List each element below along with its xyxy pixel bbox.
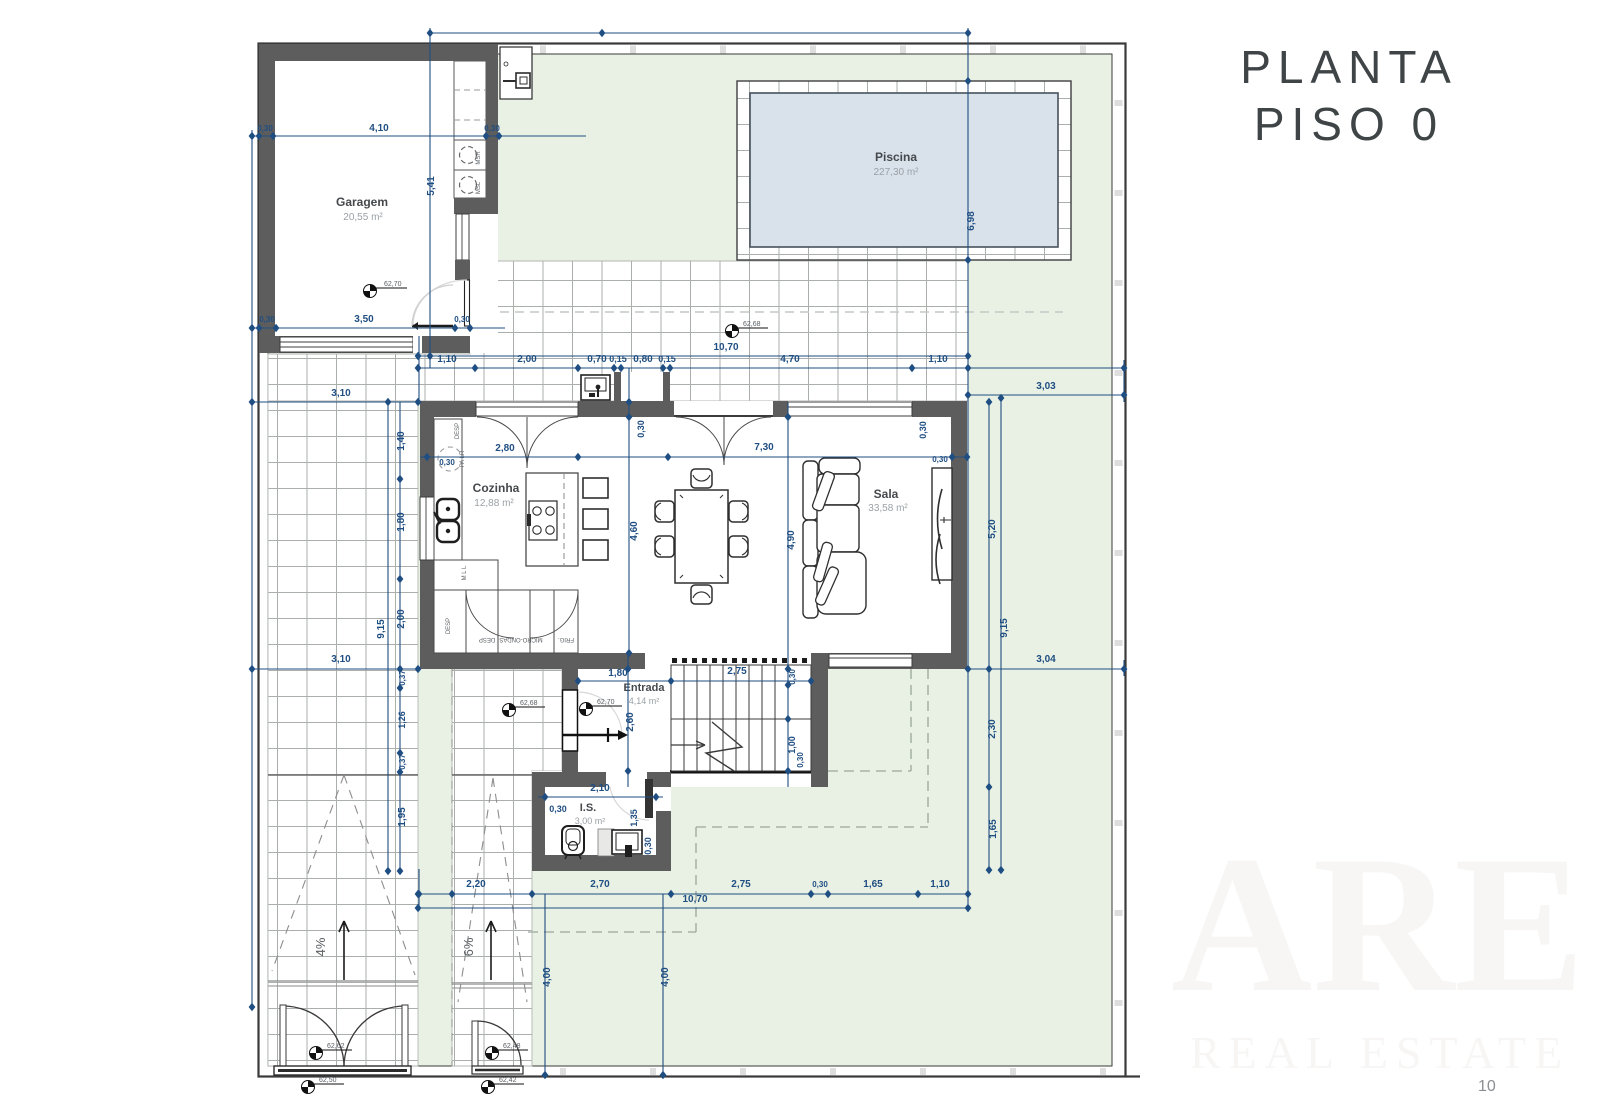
svg-text:0,30: 0,30	[484, 124, 500, 133]
svg-text:REAL ESTATE: REAL ESTATE	[1190, 1027, 1570, 1078]
svg-text:10,70: 10,70	[682, 894, 707, 905]
svg-text:6,98: 6,98	[966, 211, 977, 231]
svg-text:0,30: 0,30	[439, 458, 455, 467]
svg-text:0,15: 0,15	[609, 354, 627, 364]
svg-text:2,00: 2,00	[396, 609, 407, 629]
svg-text:3,10: 3,10	[331, 388, 351, 399]
svg-text:5,41: 5,41	[426, 176, 437, 196]
svg-text:33,58 m²: 33,58 m²	[868, 503, 908, 514]
svg-text:62,42: 62,42	[499, 1077, 517, 1084]
svg-text:1,95: 1,95	[397, 807, 408, 827]
svg-text:M L L: M L L	[462, 565, 468, 580]
svg-text:5,20: 5,20	[987, 519, 998, 539]
svg-text:227,30 m²: 227,30 m²	[873, 167, 919, 178]
svg-text:MICRO-ONDAS: MICRO-ONDAS	[499, 636, 542, 642]
svg-text:1,35: 1,35	[629, 809, 639, 827]
svg-text:4,10: 4,10	[369, 123, 389, 134]
svg-text:Entrada: Entrada	[624, 682, 666, 694]
svg-text:0,30: 0,30	[636, 420, 646, 438]
svg-text:62,68: 62,68	[743, 321, 761, 328]
svg-text:0,30: 0,30	[259, 315, 275, 324]
svg-text:3,00 m²: 3,00 m²	[575, 816, 606, 826]
svg-text:3,03: 3,03	[1036, 381, 1056, 392]
svg-text:DESP: DESP	[455, 423, 461, 439]
svg-text:62,48: 62,48	[503, 1043, 521, 1050]
svg-text:2,60: 2,60	[625, 712, 636, 732]
svg-text:62,68: 62,68	[520, 700, 538, 707]
svg-text:10: 10	[1478, 1078, 1496, 1095]
svg-text:0,37: 0,37	[398, 754, 407, 770]
svg-text:1,10: 1,10	[437, 354, 457, 365]
svg-text:0,30: 0,30	[788, 669, 797, 685]
svg-text:0,80: 0,80	[633, 354, 653, 365]
svg-text:0,70: 0,70	[587, 354, 607, 365]
svg-text:Cozinha: Cozinha	[473, 481, 520, 495]
svg-text:12,88 m²: 12,88 m²	[474, 498, 514, 509]
svg-text:4,70: 4,70	[780, 354, 800, 365]
svg-text:0,30: 0,30	[549, 804, 567, 814]
svg-text:1,80: 1,80	[608, 668, 628, 679]
svg-text:DESP: DESP	[446, 618, 452, 634]
svg-text:2,80: 2,80	[495, 443, 515, 454]
svg-text:9,15: 9,15	[376, 619, 387, 639]
svg-text:MSR: MSR	[476, 151, 482, 165]
svg-text:Garagem: Garagem	[336, 195, 388, 209]
svg-text:1,65: 1,65	[988, 819, 999, 839]
svg-text:1,65: 1,65	[863, 879, 883, 890]
svg-text:ARE: ARE	[1171, 816, 1585, 1033]
svg-text:4%: 4%	[313, 937, 328, 956]
svg-text:2,00: 2,00	[517, 354, 537, 365]
svg-text:PLANTA: PLANTA	[1240, 41, 1458, 93]
svg-text:2,20: 2,20	[466, 879, 486, 890]
svg-text:0,30: 0,30	[796, 752, 805, 768]
svg-text:4,60: 4,60	[629, 521, 640, 541]
svg-text:MSL: MSL	[476, 181, 482, 194]
svg-text:0,15: 0,15	[658, 354, 676, 364]
svg-text:0,30: 0,30	[643, 837, 653, 855]
svg-text:Sala: Sala	[874, 487, 899, 501]
svg-text:62,70: 62,70	[597, 699, 615, 706]
svg-text:9,15: 9,15	[999, 618, 1010, 638]
svg-text:4,00: 4,00	[542, 967, 553, 987]
svg-text:1,26: 1,26	[397, 711, 407, 729]
svg-text:4,90: 4,90	[786, 530, 797, 550]
svg-text:3,10: 3,10	[331, 654, 351, 665]
svg-text:2,75: 2,75	[731, 879, 751, 890]
svg-text:4,00: 4,00	[660, 967, 671, 987]
svg-text:0,30: 0,30	[932, 455, 948, 464]
svg-text:62,70: 62,70	[384, 281, 402, 288]
svg-text:10,70: 10,70	[713, 342, 738, 353]
svg-text:1,80: 1,80	[396, 512, 407, 532]
svg-text:2,70: 2,70	[590, 879, 610, 890]
svg-text:Piscina: Piscina	[875, 150, 917, 164]
svg-text:7,30: 7,30	[754, 442, 774, 453]
svg-text:4,14 m²: 4,14 m²	[629, 696, 660, 706]
svg-text:2,30: 2,30	[987, 719, 998, 739]
svg-text:2,10: 2,10	[590, 783, 610, 794]
svg-text:1,10: 1,10	[930, 879, 950, 890]
svg-text:1,40: 1,40	[396, 431, 407, 451]
svg-text:0,30: 0,30	[454, 315, 470, 324]
svg-text:0,30: 0,30	[257, 124, 273, 133]
svg-text:PA LR: PA LR	[460, 450, 466, 467]
svg-text:PISO 0: PISO 0	[1254, 98, 1444, 150]
svg-text:3,04: 3,04	[1036, 654, 1056, 665]
svg-text:62,62: 62,62	[327, 1043, 345, 1050]
svg-text:6%: 6%	[461, 937, 476, 956]
svg-text:DESP: DESP	[479, 636, 495, 642]
svg-text:0,30: 0,30	[918, 421, 928, 439]
svg-text:I.S.: I.S.	[580, 802, 597, 814]
svg-text:1,00: 1,00	[787, 736, 797, 754]
svg-text:FRIG.: FRIG.	[558, 636, 574, 642]
svg-text:3,50: 3,50	[354, 314, 374, 325]
svg-text:62,50: 62,50	[319, 1077, 337, 1084]
svg-text:1,10: 1,10	[928, 354, 948, 365]
svg-text:0,37: 0,37	[398, 670, 407, 686]
svg-text:20,55 m²: 20,55 m²	[343, 212, 383, 223]
svg-text:0,30: 0,30	[812, 880, 828, 889]
svg-text:2,75: 2,75	[727, 666, 747, 677]
